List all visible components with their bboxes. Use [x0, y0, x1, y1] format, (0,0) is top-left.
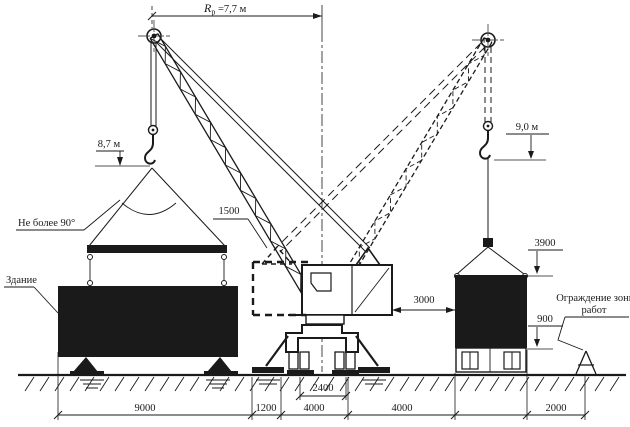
load-top-dim: 3900: [519, 238, 563, 276]
brace-pad-right: [358, 367, 390, 373]
support-pad-right: [204, 371, 238, 375]
sling-apex-block: [483, 238, 493, 247]
dim-2400-rail-gauge: 2400: [313, 383, 334, 394]
radius-dimension: Rр =7,7 м: [148, 1, 322, 28]
wheel-bogie: [300, 352, 309, 369]
fence-label-line1: Ограждение зоны: [556, 293, 630, 304]
sling-angle-label: Не более 90°: [16, 200, 120, 230]
platform-height-dim: 900: [527, 314, 563, 349]
building-leader-line: [4, 287, 58, 313]
dim-4000-right: 4000: [392, 403, 413, 414]
radius-label: Rр =7,7 м: [203, 1, 247, 17]
building-support-right: [207, 357, 232, 372]
left-load-slings: [87, 168, 227, 286]
boom-suspension: [156, 38, 485, 252]
dim-2000: 2000: [546, 403, 567, 414]
dim-4000-left: 4000: [304, 403, 325, 414]
building-label-text: Здание: [6, 275, 37, 286]
hook-block-pin: [152, 129, 155, 132]
hoist-ropes-dashed: [485, 47, 491, 122]
wheel-bogie: [289, 352, 298, 369]
hook-block-right-pin: [487, 125, 490, 128]
building-label: Здание: [4, 275, 58, 313]
sling-eye-right: [222, 255, 227, 260]
crane-load-gap-dim: 3000: [392, 295, 455, 313]
right-hoist: [480, 47, 493, 159]
brace-pad-left: [252, 367, 284, 373]
crane-lifting-scheme-drawing: 9000 1200 4000 4000 2000 2400 Здание Не …: [0, 0, 630, 427]
fence-symbol: [576, 351, 596, 374]
left-hook-height-dim: 8,7 м: [95, 139, 150, 166]
hoist-ropes: [151, 43, 156, 126]
fence-leader-line: [558, 317, 629, 350]
machinery-house: [288, 248, 392, 324]
down-arrow: [534, 339, 540, 347]
right-load: [455, 158, 528, 372]
radius-arrow: [313, 13, 322, 19]
sling-ropes: [89, 168, 225, 246]
spreader-beam: [87, 245, 227, 253]
right-arrow: [446, 307, 455, 313]
pulley-right-crosshair: [472, 24, 504, 56]
boom-heads: [138, 20, 504, 56]
hook-right: [480, 130, 490, 159]
down-arrow: [528, 151, 534, 159]
dim-9000: 9000: [135, 403, 156, 414]
platform-dim-lines: [528, 326, 563, 339]
down-arrow: [534, 266, 540, 274]
load-top-dim-lines: [528, 250, 563, 266]
sling-angle-text: Не более 90°: [18, 218, 75, 229]
rail-left: [287, 370, 314, 374]
ground-reinforcement-marks: [80, 380, 386, 388]
anchor-eye-left: [88, 281, 93, 286]
dim-1200: 1200: [256, 403, 277, 414]
platform-height-text: 900: [537, 314, 553, 325]
load-block: [455, 275, 527, 348]
right-hook-height-text: 9,0 м: [516, 122, 539, 133]
left-hook-height-text: 8,7 м: [98, 139, 121, 150]
left-arrow: [392, 307, 401, 313]
building-body: [58, 286, 238, 357]
turntable: [306, 315, 344, 324]
crane-diagram-page: 9000 1200 4000 4000 2000 2400 Здание Не …: [0, 0, 630, 427]
load-slings: [457, 247, 524, 274]
tail-clearance-leader: [213, 219, 267, 248]
load-top-text: 3900: [535, 238, 556, 249]
suspension-ropes-dashed: [276, 43, 485, 252]
wheel-bogie: [335, 352, 344, 369]
building: [58, 286, 238, 375]
fence-label-line2: работ: [582, 305, 607, 316]
tail-clearance-text: 1500: [219, 206, 240, 217]
crane-base: [252, 325, 390, 374]
sling-eye-left: [88, 255, 93, 260]
hook-left: [145, 134, 155, 164]
anchor-eye-right: [222, 281, 227, 286]
support-pad-left: [70, 371, 104, 375]
building-support-left: [73, 357, 98, 372]
work-zone-fence: Ограждение зоны работ: [556, 293, 630, 374]
wheel-bogie: [346, 352, 355, 369]
pendant-lines: [90, 259, 224, 281]
down-arrow: [117, 157, 123, 166]
right-hook-height-dim: 9,0 м: [494, 122, 549, 160]
right-hook-dim-lines: [506, 134, 549, 151]
rail-right: [332, 370, 359, 374]
left-hoist: [145, 43, 158, 164]
gap-text: 3000: [414, 295, 435, 306]
left-hook-dim-lines: [96, 151, 124, 158]
sling-angle-arc: [122, 203, 176, 215]
